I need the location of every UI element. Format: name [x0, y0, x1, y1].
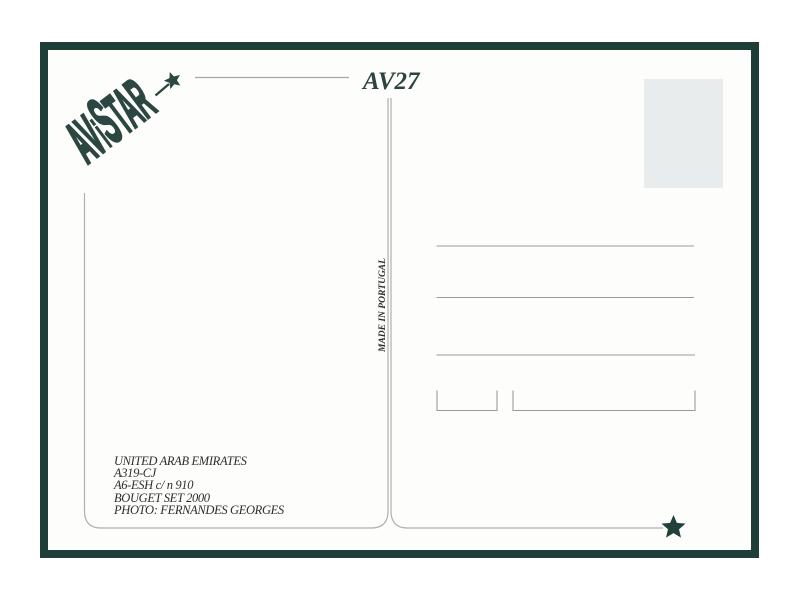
svg-text:AViSTAR: AViSTAR	[49, 60, 167, 176]
